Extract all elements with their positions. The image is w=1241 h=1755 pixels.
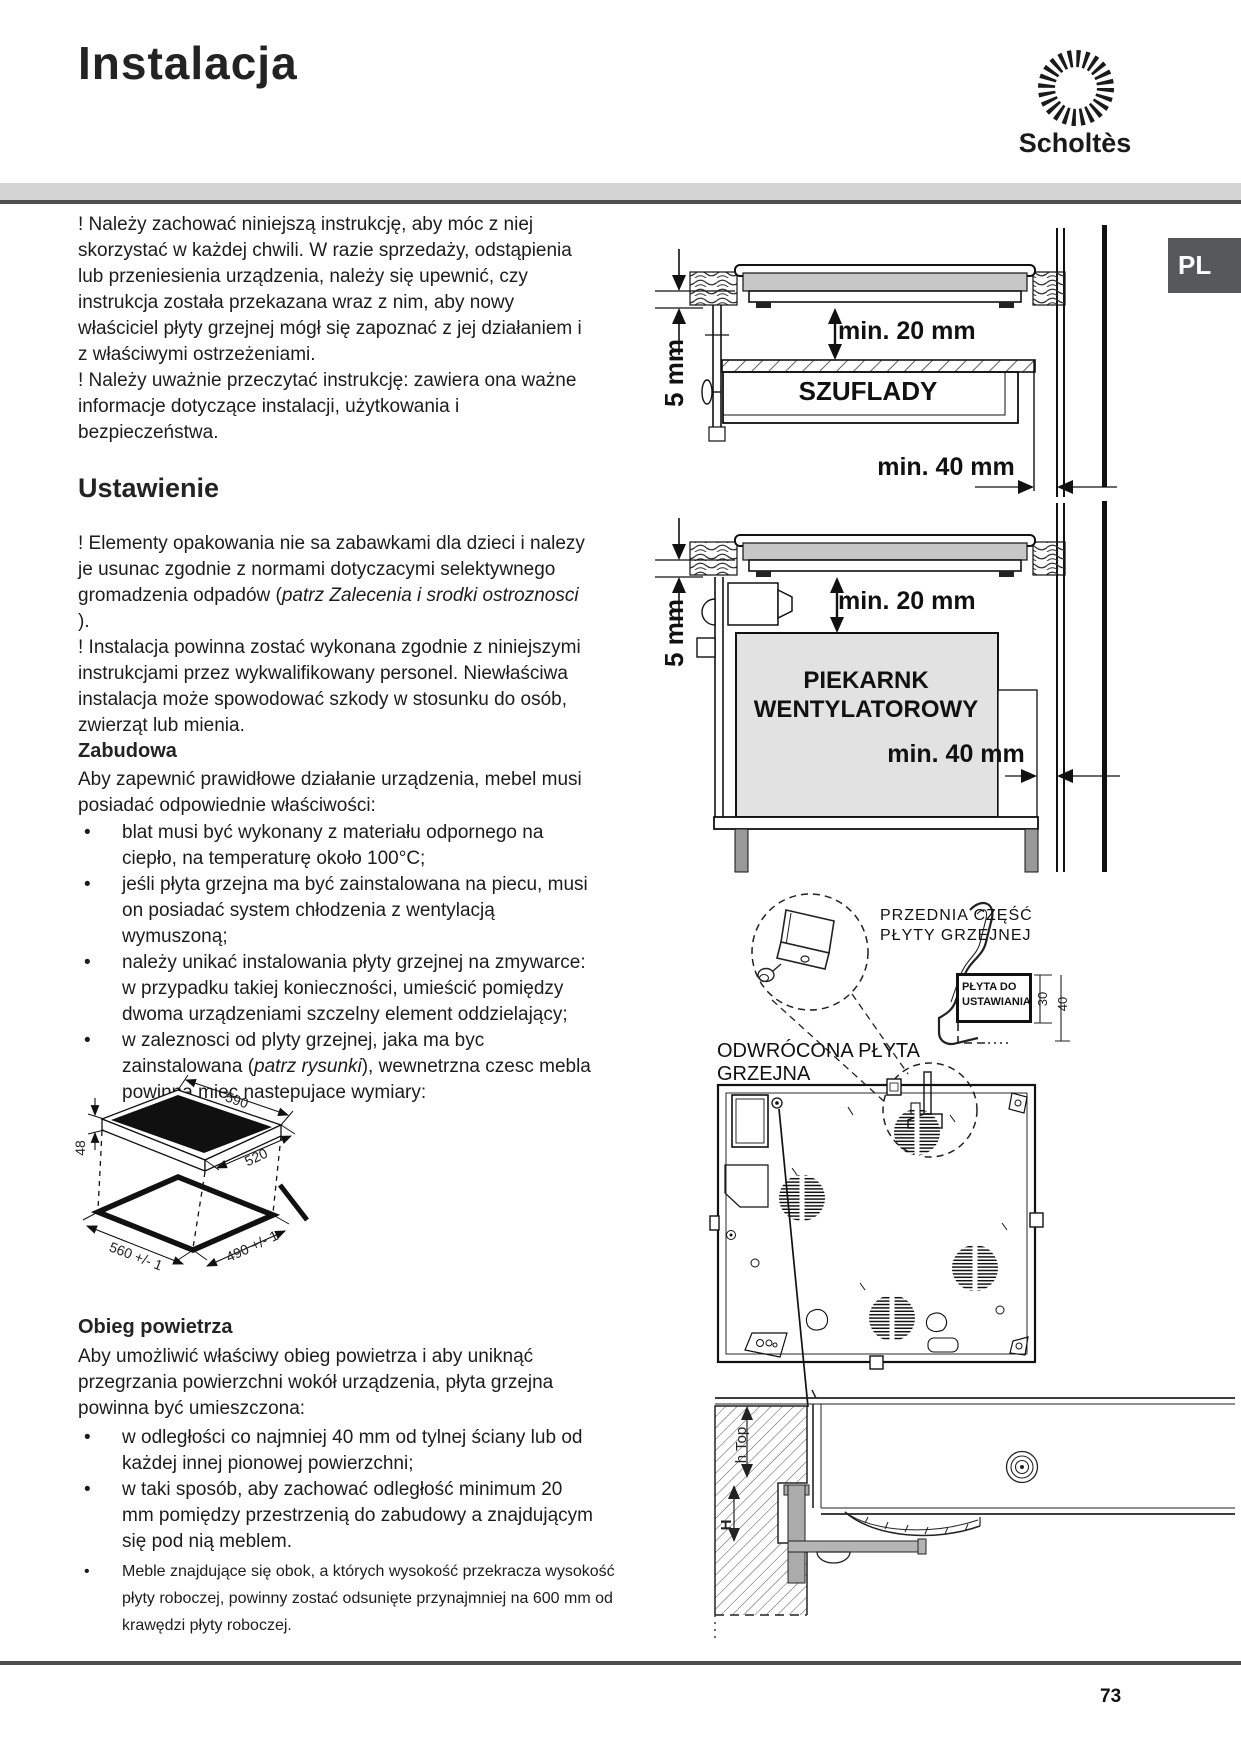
list-item: blat musi być wykonany z materiału odpor… bbox=[78, 820, 598, 872]
drawer-gap-back-label: min. 40 mm bbox=[866, 453, 1026, 482]
ustawienie-p1-tail: ). bbox=[78, 611, 90, 632]
list-item-text: Meble znajdujące się obok, a których wys… bbox=[122, 1558, 623, 1639]
hob-height-dim: 48 bbox=[65, 1123, 95, 1173]
obieg-bullet-list: w odległości co najmniej 40 mm od tylnej… bbox=[78, 1425, 598, 1555]
intro-paragraph-1: ! Należy zachować niniejszą instrukcję, … bbox=[78, 212, 593, 368]
header-divider-band bbox=[0, 183, 1241, 204]
oven-gap-below-label: min. 20 mm bbox=[838, 587, 976, 616]
inverted-hob-underside-diagram bbox=[700, 1075, 1050, 1415]
dim-40-label: 40 bbox=[1051, 990, 1073, 1018]
list-item-text: w odległości co najmniej 40 mm od tylnej… bbox=[122, 1425, 598, 1477]
intro-paragraph-2: ! Należy uważnie przeczytać instrukcję: … bbox=[78, 368, 593, 446]
drawer-gap-below-label: min. 20 mm bbox=[838, 317, 976, 346]
list-item: Meble znajdujące się obok, a których wys… bbox=[78, 1558, 623, 1639]
list-item: w taki sposób, aby zachować odległość mi… bbox=[78, 1477, 598, 1555]
section-heading-ustawienie: Ustawienie bbox=[78, 473, 219, 504]
list-item: w odległości co najmniej 40 mm od tylnej… bbox=[78, 1425, 598, 1477]
ustawienie-p1-italic: patrz Zalecenia i srodki ostroznosci bbox=[282, 585, 579, 606]
obieg-small-note: Meble znajdujące się obok, a których wys… bbox=[78, 1558, 623, 1639]
zabudowa-intro: Aby zapewnić prawidłowe działanie urządz… bbox=[78, 767, 593, 819]
scholtes-sunburst-icon bbox=[1037, 48, 1115, 128]
front-part-line2: PŁYTY GRZEJNEJ bbox=[880, 927, 1032, 944]
list-item-text: jeśli płyta grzejna ma być zainstalowana… bbox=[122, 872, 598, 950]
page-number: 73 bbox=[1100, 1686, 1121, 1708]
obieg-intro: Aby umożliwić właściwy obieg powietrza i… bbox=[78, 1344, 593, 1422]
ustawienie-paragraph-2: ! Instalacja powinna zostać wykonana zgo… bbox=[78, 635, 593, 739]
dim-30-label: 30 bbox=[1031, 985, 1053, 1013]
manual-page: Instalacja Scholtès PL ! Należy zachować… bbox=[0, 0, 1241, 1755]
oven-label: PIEKARNKWENTYLATOROWY bbox=[716, 666, 1016, 724]
list-item-text: należy unikać instalowania płyty grzejne… bbox=[122, 950, 598, 1028]
oven-gap-side-label: 5 mm bbox=[650, 583, 698, 683]
front-part-label: PRZEDNIA CZĘŚĆPŁYTY GRZEJNEJ bbox=[880, 906, 1033, 946]
zabudowa-bullet-list: blat musi być wykonany z materiału odpor… bbox=[78, 820, 598, 1106]
list-item-text: w taki sposób, aby zachować odległość mi… bbox=[122, 1477, 598, 1555]
brand-logo-text: Scholtès bbox=[1005, 128, 1145, 159]
ustawienie-paragraph-1: ! Elementy opakowania nie sa zabawkami d… bbox=[78, 531, 593, 635]
intro-paragraphs: ! Należy zachować niniejszą instrukcję, … bbox=[78, 212, 593, 446]
front-part-line1: PRZEDNIA CZĘŚĆ bbox=[880, 907, 1033, 924]
page-title: Instalacja bbox=[78, 36, 298, 90]
h-dim-label: H bbox=[714, 1505, 738, 1545]
plate-label-line2: USTAWIANIA bbox=[962, 996, 1031, 1008]
adjustment-plate-label: PŁYTA DOUSTAWIANIA bbox=[956, 973, 1032, 1023]
oven-gap-back-label: min. 40 mm bbox=[876, 740, 1036, 769]
plate-label-line1: PŁYTA DO bbox=[962, 981, 1016, 993]
drawer-label: SZUFLADY bbox=[768, 376, 968, 407]
htop-dim-label: h Top bbox=[729, 1410, 753, 1480]
footer-rule bbox=[0, 1661, 1241, 1665]
inverted-label-line1: ODWRÓCONA PŁYTA bbox=[717, 1040, 920, 1062]
drawer-gap-side-label: 5 mm bbox=[650, 323, 698, 423]
list-item: jeśli płyta grzejna ma być zainstalowana… bbox=[78, 872, 598, 950]
list-item-text: blat musi być wykonany z materiału odpor… bbox=[122, 820, 598, 872]
ustawienie-paragraphs: ! Elementy opakowania nie sa zabawkami d… bbox=[78, 531, 593, 739]
oven-label-line2: WENTYLATOROWY bbox=[754, 695, 978, 724]
oven-label-line1: PIEKARNK bbox=[803, 666, 928, 695]
subheading-obieg-powietrza: Obieg powietrza bbox=[78, 1316, 232, 1339]
subheading-zabudowa: Zabudowa bbox=[78, 740, 177, 763]
list-item: należy unikać instalowania płyty grzejne… bbox=[78, 950, 598, 1028]
